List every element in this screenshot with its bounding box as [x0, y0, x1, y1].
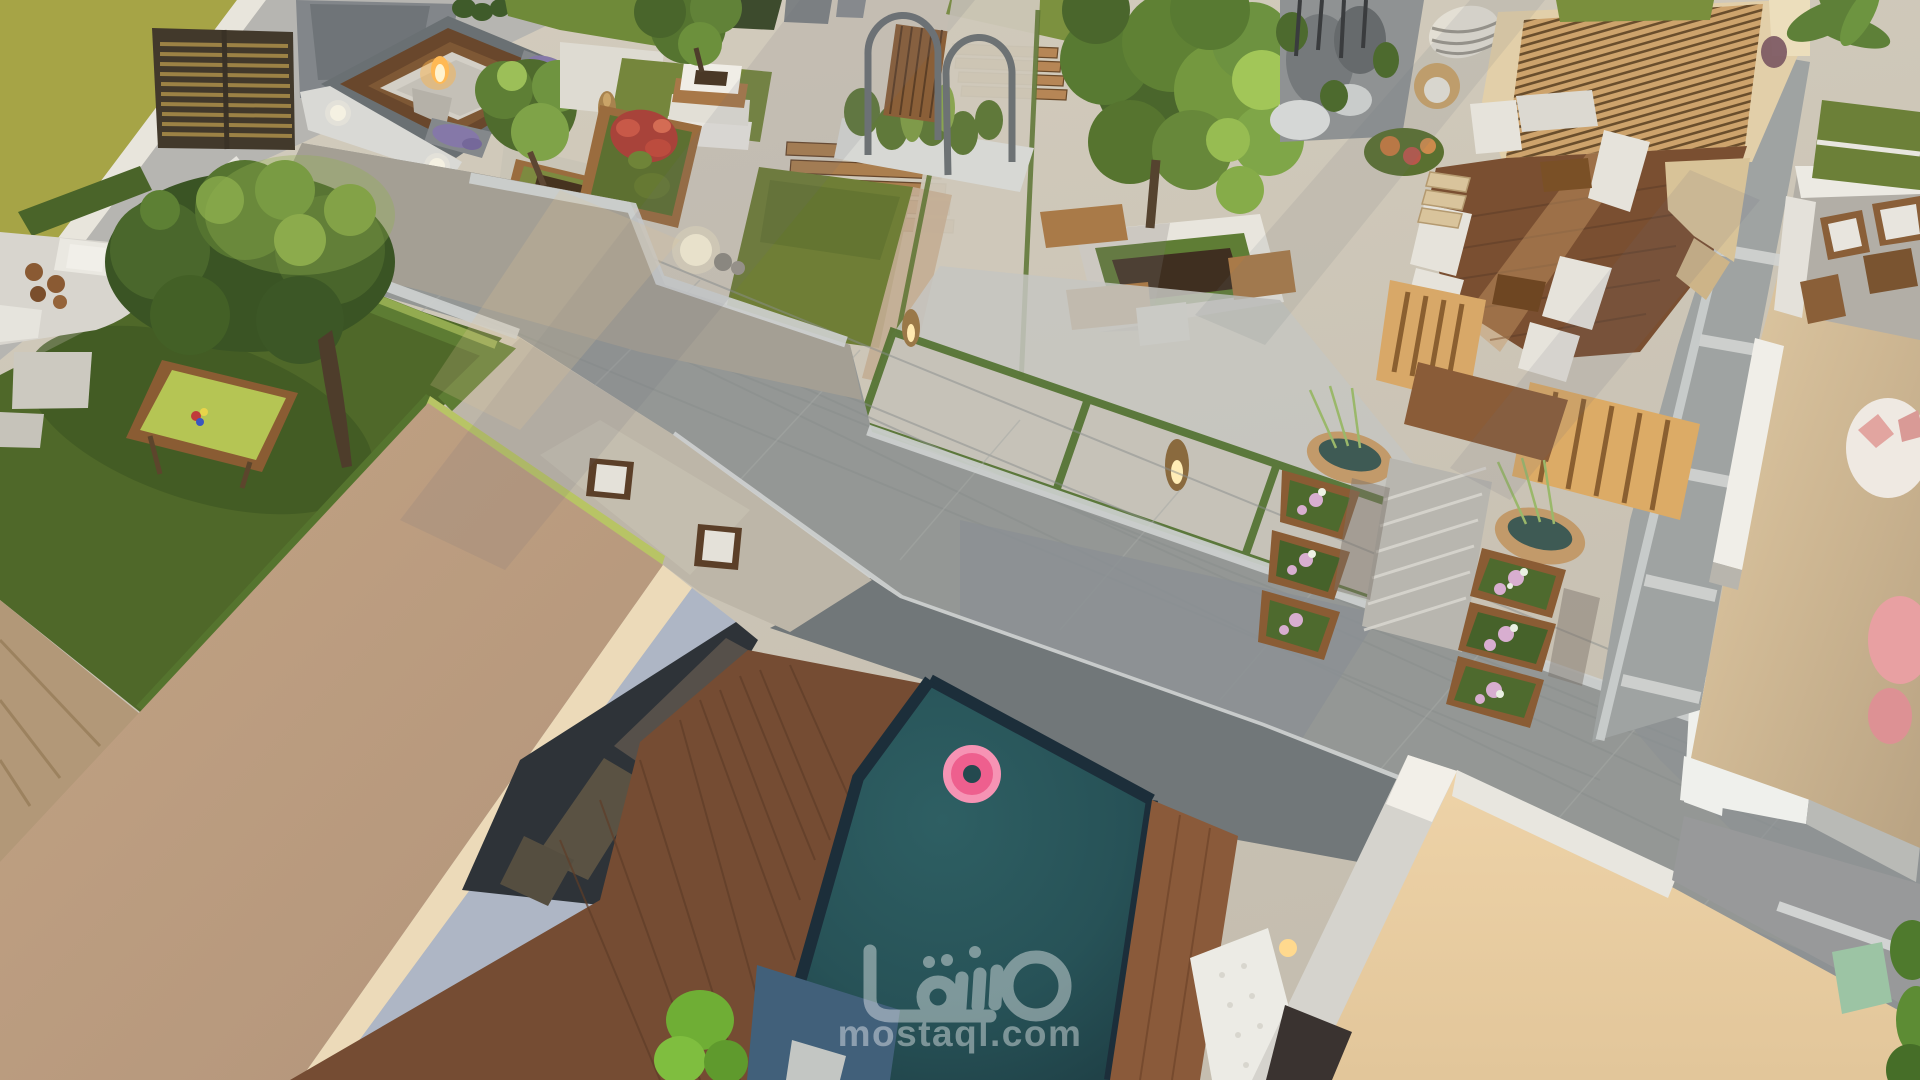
svg-text:mostaql.com: mostaql.com [838, 1013, 1083, 1054]
